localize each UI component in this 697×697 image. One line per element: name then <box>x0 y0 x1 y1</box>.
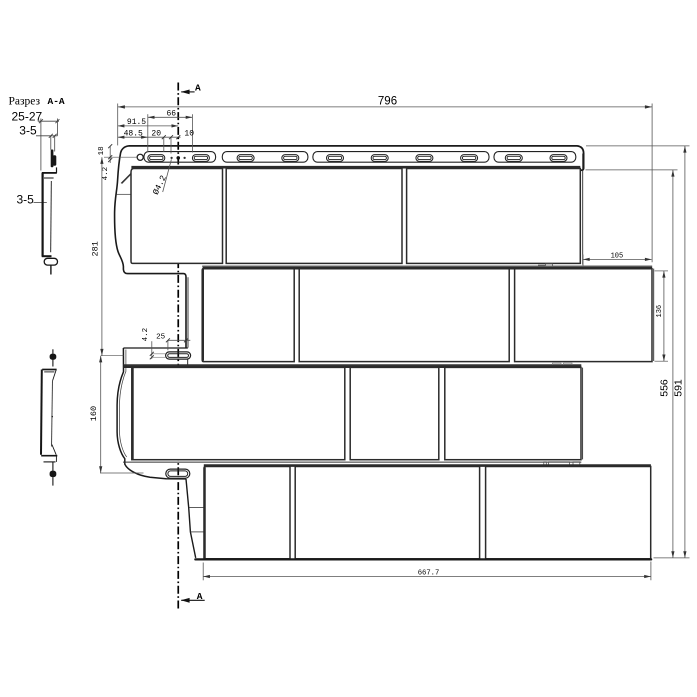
svg-text:Разрез: Разрез <box>9 96 41 108</box>
svg-text:А-А: А-А <box>48 96 65 107</box>
svg-text:4.2: 4.2 <box>142 328 150 342</box>
svg-text:3-5: 3-5 <box>19 124 37 138</box>
svg-text:10: 10 <box>184 129 194 138</box>
svg-text:20: 20 <box>151 129 161 138</box>
svg-text:25-27: 25-27 <box>12 110 43 124</box>
svg-text:136: 136 <box>656 305 664 318</box>
svg-text:A: A <box>197 591 203 602</box>
svg-text:556: 556 <box>658 379 670 397</box>
svg-text:25: 25 <box>156 334 166 342</box>
svg-text:91.5: 91.5 <box>127 118 146 127</box>
svg-text:66: 66 <box>166 110 176 119</box>
svg-text:667.7: 667.7 <box>418 569 440 577</box>
svg-text:796: 796 <box>378 96 397 108</box>
svg-text:591: 591 <box>672 379 684 397</box>
svg-text:105: 105 <box>611 253 624 261</box>
svg-text:3-5: 3-5 <box>17 193 35 207</box>
svg-text:281: 281 <box>90 241 100 256</box>
svg-text:160: 160 <box>89 406 99 421</box>
svg-text:18: 18 <box>98 146 106 155</box>
svg-text:48.5: 48.5 <box>124 129 143 138</box>
svg-text:A: A <box>195 83 201 94</box>
svg-text:4.2: 4.2 <box>102 167 110 181</box>
